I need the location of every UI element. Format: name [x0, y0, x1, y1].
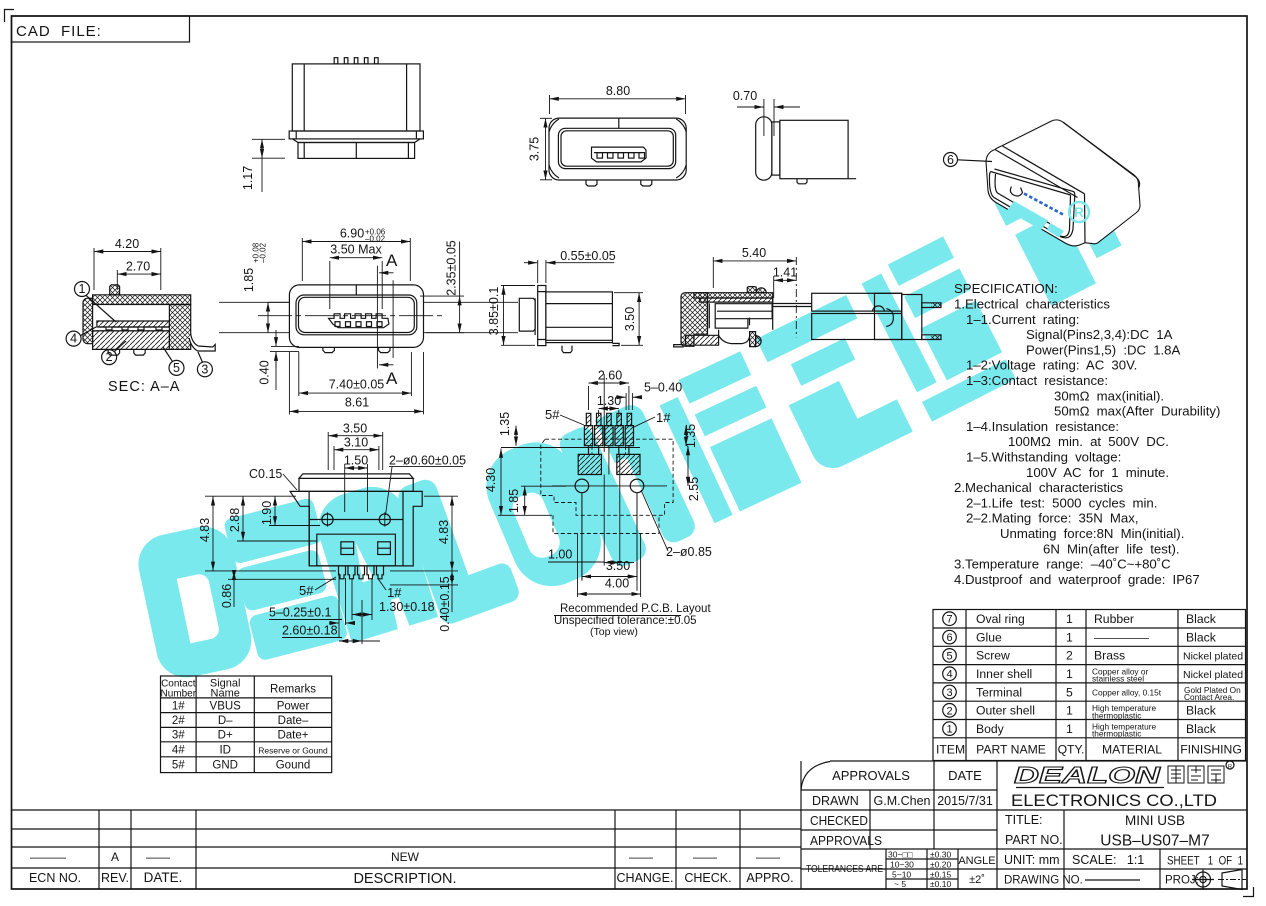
svg-text:5#: 5#: [299, 583, 314, 598]
svg-text:1.35: 1.35: [684, 424, 698, 448]
svg-text:2.60±0.18: 2.60±0.18: [282, 624, 338, 638]
svg-text:4.83: 4.83: [437, 520, 451, 544]
svg-text:SCALE: 1:1: SCALE: 1:1: [1072, 853, 1144, 867]
svg-text:4.20: 4.20: [115, 237, 139, 251]
svg-text:Copper alloy, 0.15t: Copper alloy, 0.15t: [1092, 687, 1162, 697]
svg-text:USB–US07–M7: USB–US07–M7: [1100, 833, 1209, 850]
svg-text:–0.02: –0.02: [259, 242, 268, 263]
svg-text:2–1.Life test: 5000 cycles: 2–1.Life test: 5000 cycles min.: [966, 495, 1157, 510]
svg-text:Gound: Gound: [276, 760, 311, 772]
svg-text:4: 4: [946, 669, 952, 681]
svg-text:100V AC for 1 minute.: 100V AC for 1 minute.: [1026, 465, 1169, 480]
svg-text:SEC: A–A: SEC: A–A: [108, 379, 180, 395]
svg-text:1#: 1#: [387, 585, 402, 600]
svg-text:Inner shell: Inner shell: [976, 667, 1032, 681]
svg-text:C0.15: C0.15: [249, 467, 282, 481]
svg-text:1.30±0.18: 1.30±0.18: [379, 600, 435, 614]
svg-text:30~□□: 30~□□: [888, 850, 913, 860]
svg-text:2: 2: [1066, 649, 1073, 663]
svg-text:thermoplastic: thermoplastic: [1092, 729, 1141, 739]
svg-text:Outer shell: Outer shell: [976, 704, 1035, 718]
svg-text:1: 1: [1066, 722, 1073, 736]
svg-text:Date+: Date+: [277, 730, 308, 742]
svg-text:1.50: 1.50: [344, 454, 368, 468]
svg-text:3.50: 3.50: [343, 422, 367, 436]
svg-text:6.90: 6.90: [340, 227, 364, 241]
svg-text:A: A: [111, 850, 119, 864]
svg-text:R: R: [1228, 764, 1232, 770]
svg-text:2.70: 2.70: [126, 260, 150, 274]
svg-text:5–0.25±0.1: 5–0.25±0.1: [269, 606, 332, 620]
svg-text:1#: 1#: [656, 410, 671, 425]
svg-text:DESCRIPTION.: DESCRIPTION.: [353, 871, 456, 887]
svg-text:±0.20: ±0.20: [930, 860, 951, 870]
svg-text:TITLE:: TITLE:: [1005, 813, 1043, 827]
svg-text:±0.10: ±0.10: [930, 879, 951, 889]
svg-text:5: 5: [946, 650, 952, 662]
svg-text:APPROVALS: APPROVALS: [810, 834, 882, 848]
svg-text:thermoplastic: thermoplastic: [1092, 710, 1141, 720]
svg-text:CHANGE.: CHANGE.: [617, 871, 674, 885]
svg-text:5: 5: [1066, 685, 1073, 699]
svg-text:1: 1: [79, 282, 86, 296]
svg-text:DRAWING NO.: DRAWING NO.: [1004, 875, 1083, 887]
svg-text:1: 1: [946, 724, 952, 736]
svg-text:GND: GND: [212, 760, 238, 772]
svg-text:APPROVALS: APPROVALS: [832, 768, 910, 783]
svg-text:1.85: 1.85: [507, 489, 521, 513]
svg-text:0.40±0.15: 0.40±0.15: [438, 576, 452, 632]
svg-text:4#: 4#: [172, 745, 185, 757]
svg-text:Signal(Pins2,3,4):DC 1A: Signal(Pins2,3,4):DC 1A: [1026, 327, 1173, 342]
svg-text:SHEET 1 OF 1: SHEET 1 OF 1: [1167, 856, 1243, 868]
svg-text:1–3:Contact resistance:: 1–3:Contact resistance:: [966, 373, 1108, 388]
svg-text:—————: —————: [1094, 632, 1149, 644]
svg-text:NEW: NEW: [391, 850, 420, 864]
svg-text:ANGLE: ANGLE: [958, 855, 995, 867]
svg-text:APPRO.: APPRO.: [746, 871, 793, 885]
svg-text:stainless steel: stainless steel: [1092, 674, 1144, 684]
svg-text:Body: Body: [976, 722, 1005, 736]
svg-text:3#: 3#: [172, 730, 185, 742]
svg-text:6: 6: [947, 153, 954, 167]
svg-text:1.85: 1.85: [242, 268, 256, 292]
svg-text:3.50 Max: 3.50 Max: [330, 243, 382, 257]
svg-text:CHECKED: CHECKED: [810, 814, 868, 828]
svg-text:Nickel plated: Nickel plated: [1183, 651, 1243, 663]
svg-text:Contact Area.: Contact Area.: [1184, 692, 1234, 702]
svg-text:Rubber: Rubber: [1094, 612, 1134, 626]
svg-text:Power: Power: [277, 701, 310, 713]
svg-text:1–4.Insulation resistance:: 1–4.Insulation resistance:: [966, 419, 1119, 434]
svg-text:PART NO.: PART NO.: [1005, 833, 1063, 847]
svg-text:6N Min(after life test).: 6N Min(after life test).: [1043, 541, 1180, 556]
svg-text:4: 4: [70, 332, 77, 346]
svg-text:1.17: 1.17: [241, 166, 255, 190]
svg-text:1: 1: [1066, 704, 1073, 718]
svg-text:0.55±0.05: 0.55±0.05: [560, 249, 616, 263]
svg-text:1: 1: [1066, 667, 1073, 681]
svg-text:1#: 1#: [172, 701, 185, 713]
svg-text:5#: 5#: [172, 760, 185, 772]
svg-text:UNIT: mm: UNIT: mm: [1004, 853, 1060, 867]
svg-text:5: 5: [173, 361, 180, 375]
svg-text:Recommended P.C.B. Layout: Recommended P.C.B. Layout: [560, 603, 711, 615]
svg-text:DRAWN: DRAWN: [812, 794, 859, 808]
svg-text:Date–: Date–: [278, 715, 309, 727]
svg-text:DATE: DATE: [948, 768, 982, 783]
svg-text:Screw: Screw: [976, 649, 1010, 663]
svg-text:Unmating force:8N Min(initia: Unmating force:8N Min(initial).: [1000, 526, 1184, 541]
svg-text:A: A: [386, 369, 398, 388]
svg-text:Power(Pins1,5) :DC 1.8A: Power(Pins1,5) :DC 1.8A: [1026, 342, 1181, 357]
svg-text:FINISHING: FINISHING: [1180, 743, 1242, 757]
svg-text:3.75: 3.75: [528, 137, 542, 161]
svg-text:3.50: 3.50: [606, 559, 630, 573]
svg-text:Reserve or Gound: Reserve or Gound: [258, 745, 328, 755]
svg-text:DATE.: DATE.: [144, 870, 183, 885]
svg-text:——: ——: [693, 850, 717, 864]
svg-text:QTY.: QTY.: [1058, 743, 1085, 757]
svg-text:1: 1: [1066, 612, 1073, 626]
svg-text:8.61: 8.61: [345, 396, 369, 410]
svg-text:1.41: 1.41: [773, 266, 797, 280]
svg-text:SPECIFICATION:: SPECIFICATION:: [954, 281, 1058, 296]
svg-text:ECN NO.: ECN NO.: [29, 871, 81, 885]
svg-text:D+: D+: [218, 730, 233, 742]
svg-text:2.55: 2.55: [687, 477, 701, 501]
svg-text:DEALON: DEALON: [1014, 762, 1161, 788]
svg-text:(Top view): (Top view): [590, 626, 638, 638]
svg-text:2–2.Mating force: 35N Max,: 2–2.Mating force: 35N Max,: [966, 511, 1139, 526]
svg-text:Black: Black: [1186, 612, 1217, 626]
svg-text:2#: 2#: [172, 715, 185, 727]
svg-text:0.70: 0.70: [733, 89, 757, 103]
svg-text:1.Electrical characteristics: 1.Electrical characteristics: [954, 297, 1110, 312]
svg-text:0.86: 0.86: [220, 584, 234, 608]
svg-text:~ 5: ~ 5: [894, 879, 906, 889]
svg-text:1.35: 1.35: [498, 412, 512, 436]
svg-text:2.Mechanical characteristics: 2.Mechanical characteristics: [954, 480, 1124, 495]
svg-text:VBUS: VBUS: [210, 701, 242, 713]
svg-text:Black: Black: [1186, 630, 1217, 644]
svg-text:2015/7/31: 2015/7/31: [937, 794, 993, 808]
svg-text:2–ø0.85: 2–ø0.85: [666, 545, 712, 559]
svg-text:2.35±0.05: 2.35±0.05: [445, 240, 459, 296]
svg-text:7: 7: [946, 614, 952, 626]
svg-text:5~10: 5~10: [892, 870, 911, 880]
svg-text:2: 2: [106, 350, 113, 364]
svg-text:1.90: 1.90: [260, 501, 274, 525]
svg-text:ID: ID: [219, 745, 231, 757]
svg-text:6: 6: [946, 632, 952, 644]
svg-text:10~30: 10~30: [890, 860, 914, 870]
svg-text:Remarks: Remarks: [270, 684, 316, 696]
svg-text:1.00: 1.00: [548, 548, 572, 562]
svg-text:CHECK.: CHECK.: [684, 871, 731, 885]
svg-text:100MΩ min. at 500V DC.: 100MΩ min. at 500V DC.: [1008, 434, 1169, 449]
svg-text:3.10: 3.10: [344, 436, 368, 450]
svg-text:D–: D–: [218, 715, 233, 727]
svg-text:Oval ring: Oval ring: [976, 612, 1025, 626]
svg-text:±0.30: ±0.30: [930, 850, 951, 860]
svg-text:2.60: 2.60: [598, 369, 622, 383]
svg-text:MINI USB: MINI USB: [1125, 813, 1185, 828]
svg-text:G.M.Chen: G.M.Chen: [874, 794, 931, 808]
svg-text:5–0.40: 5–0.40: [644, 381, 682, 395]
svg-text:R: R: [1074, 205, 1084, 220]
svg-text:1–2:Voltage rating: AC 30V.: 1–2:Voltage rating: AC 30V.: [966, 358, 1137, 373]
svg-text:——: ——: [629, 850, 653, 864]
svg-text:4.Dustproof and waterproof: 4.Dustproof and waterproof grade: IP67: [954, 572, 1200, 587]
svg-text:A: A: [386, 251, 398, 270]
svg-text:Number: Number: [161, 689, 197, 700]
svg-text:ELECTRONICS CO.,LTD: ELECTRONICS CO.,LTD: [1011, 792, 1217, 810]
svg-text:MATERIAL: MATERIAL: [1102, 743, 1162, 757]
svg-text:50mΩ max(After Durability): 50mΩ max(After Durability): [1054, 404, 1220, 419]
svg-text:Black: Black: [1186, 722, 1217, 736]
svg-text:Brass: Brass: [1094, 649, 1125, 663]
svg-text:2: 2: [946, 705, 952, 717]
svg-text:PART NAME: PART NAME: [976, 743, 1046, 757]
svg-text:1.30: 1.30: [597, 394, 621, 408]
svg-text:30mΩ max(initial).: 30mΩ max(initial).: [1054, 388, 1164, 403]
svg-text:Name: Name: [211, 688, 240, 700]
svg-text:ITEM: ITEM: [936, 743, 965, 757]
svg-text:5.40: 5.40: [742, 246, 766, 260]
svg-text:TOLERANCES ARE: TOLERANCES ARE: [806, 863, 883, 875]
svg-text:0.40: 0.40: [258, 360, 272, 384]
svg-text:8.80: 8.80: [606, 84, 630, 98]
svg-text:3.85±0.1: 3.85±0.1: [487, 287, 501, 336]
svg-text:2.88: 2.88: [228, 508, 242, 532]
svg-text:2–ø0.60±0.05: 2–ø0.60±0.05: [389, 454, 466, 468]
svg-text:3: 3: [946, 687, 952, 699]
svg-text:——: ——: [756, 850, 780, 864]
svg-text:3: 3: [201, 362, 208, 376]
svg-text:±0.15: ±0.15: [930, 870, 951, 880]
svg-text:1: 1: [1066, 630, 1073, 644]
svg-text:1–1.Current rating:: 1–1.Current rating:: [966, 312, 1079, 327]
svg-text:7.40±0.05: 7.40±0.05: [329, 378, 385, 392]
svg-text:4.83: 4.83: [198, 518, 212, 542]
svg-text:Glue: Glue: [976, 630, 1002, 644]
svg-text:Nickel plated: Nickel plated: [1183, 669, 1243, 681]
svg-text:5#: 5#: [545, 407, 560, 422]
svg-text:Terminal: Terminal: [976, 685, 1022, 699]
svg-text:4.00: 4.00: [605, 577, 629, 591]
svg-text:——: ——: [146, 850, 170, 864]
svg-text:REV.: REV.: [101, 871, 129, 885]
svg-text:3.50: 3.50: [623, 307, 637, 331]
svg-text:4.30: 4.30: [484, 468, 498, 492]
svg-text:CAD FILE:: CAD FILE:: [16, 23, 102, 40]
svg-text:1–5.Withstanding voltage:: 1–5.Withstanding voltage:: [966, 450, 1121, 465]
svg-text:PROJ:: PROJ:: [1165, 875, 1199, 887]
svg-text:Black: Black: [1186, 704, 1217, 718]
svg-text:———: ———: [30, 850, 66, 864]
svg-text:±2˚: ±2˚: [969, 874, 985, 886]
svg-text:3.Temperature range: –40˚C~+: 3.Temperature range: –40˚C~+80˚C: [954, 557, 1171, 572]
